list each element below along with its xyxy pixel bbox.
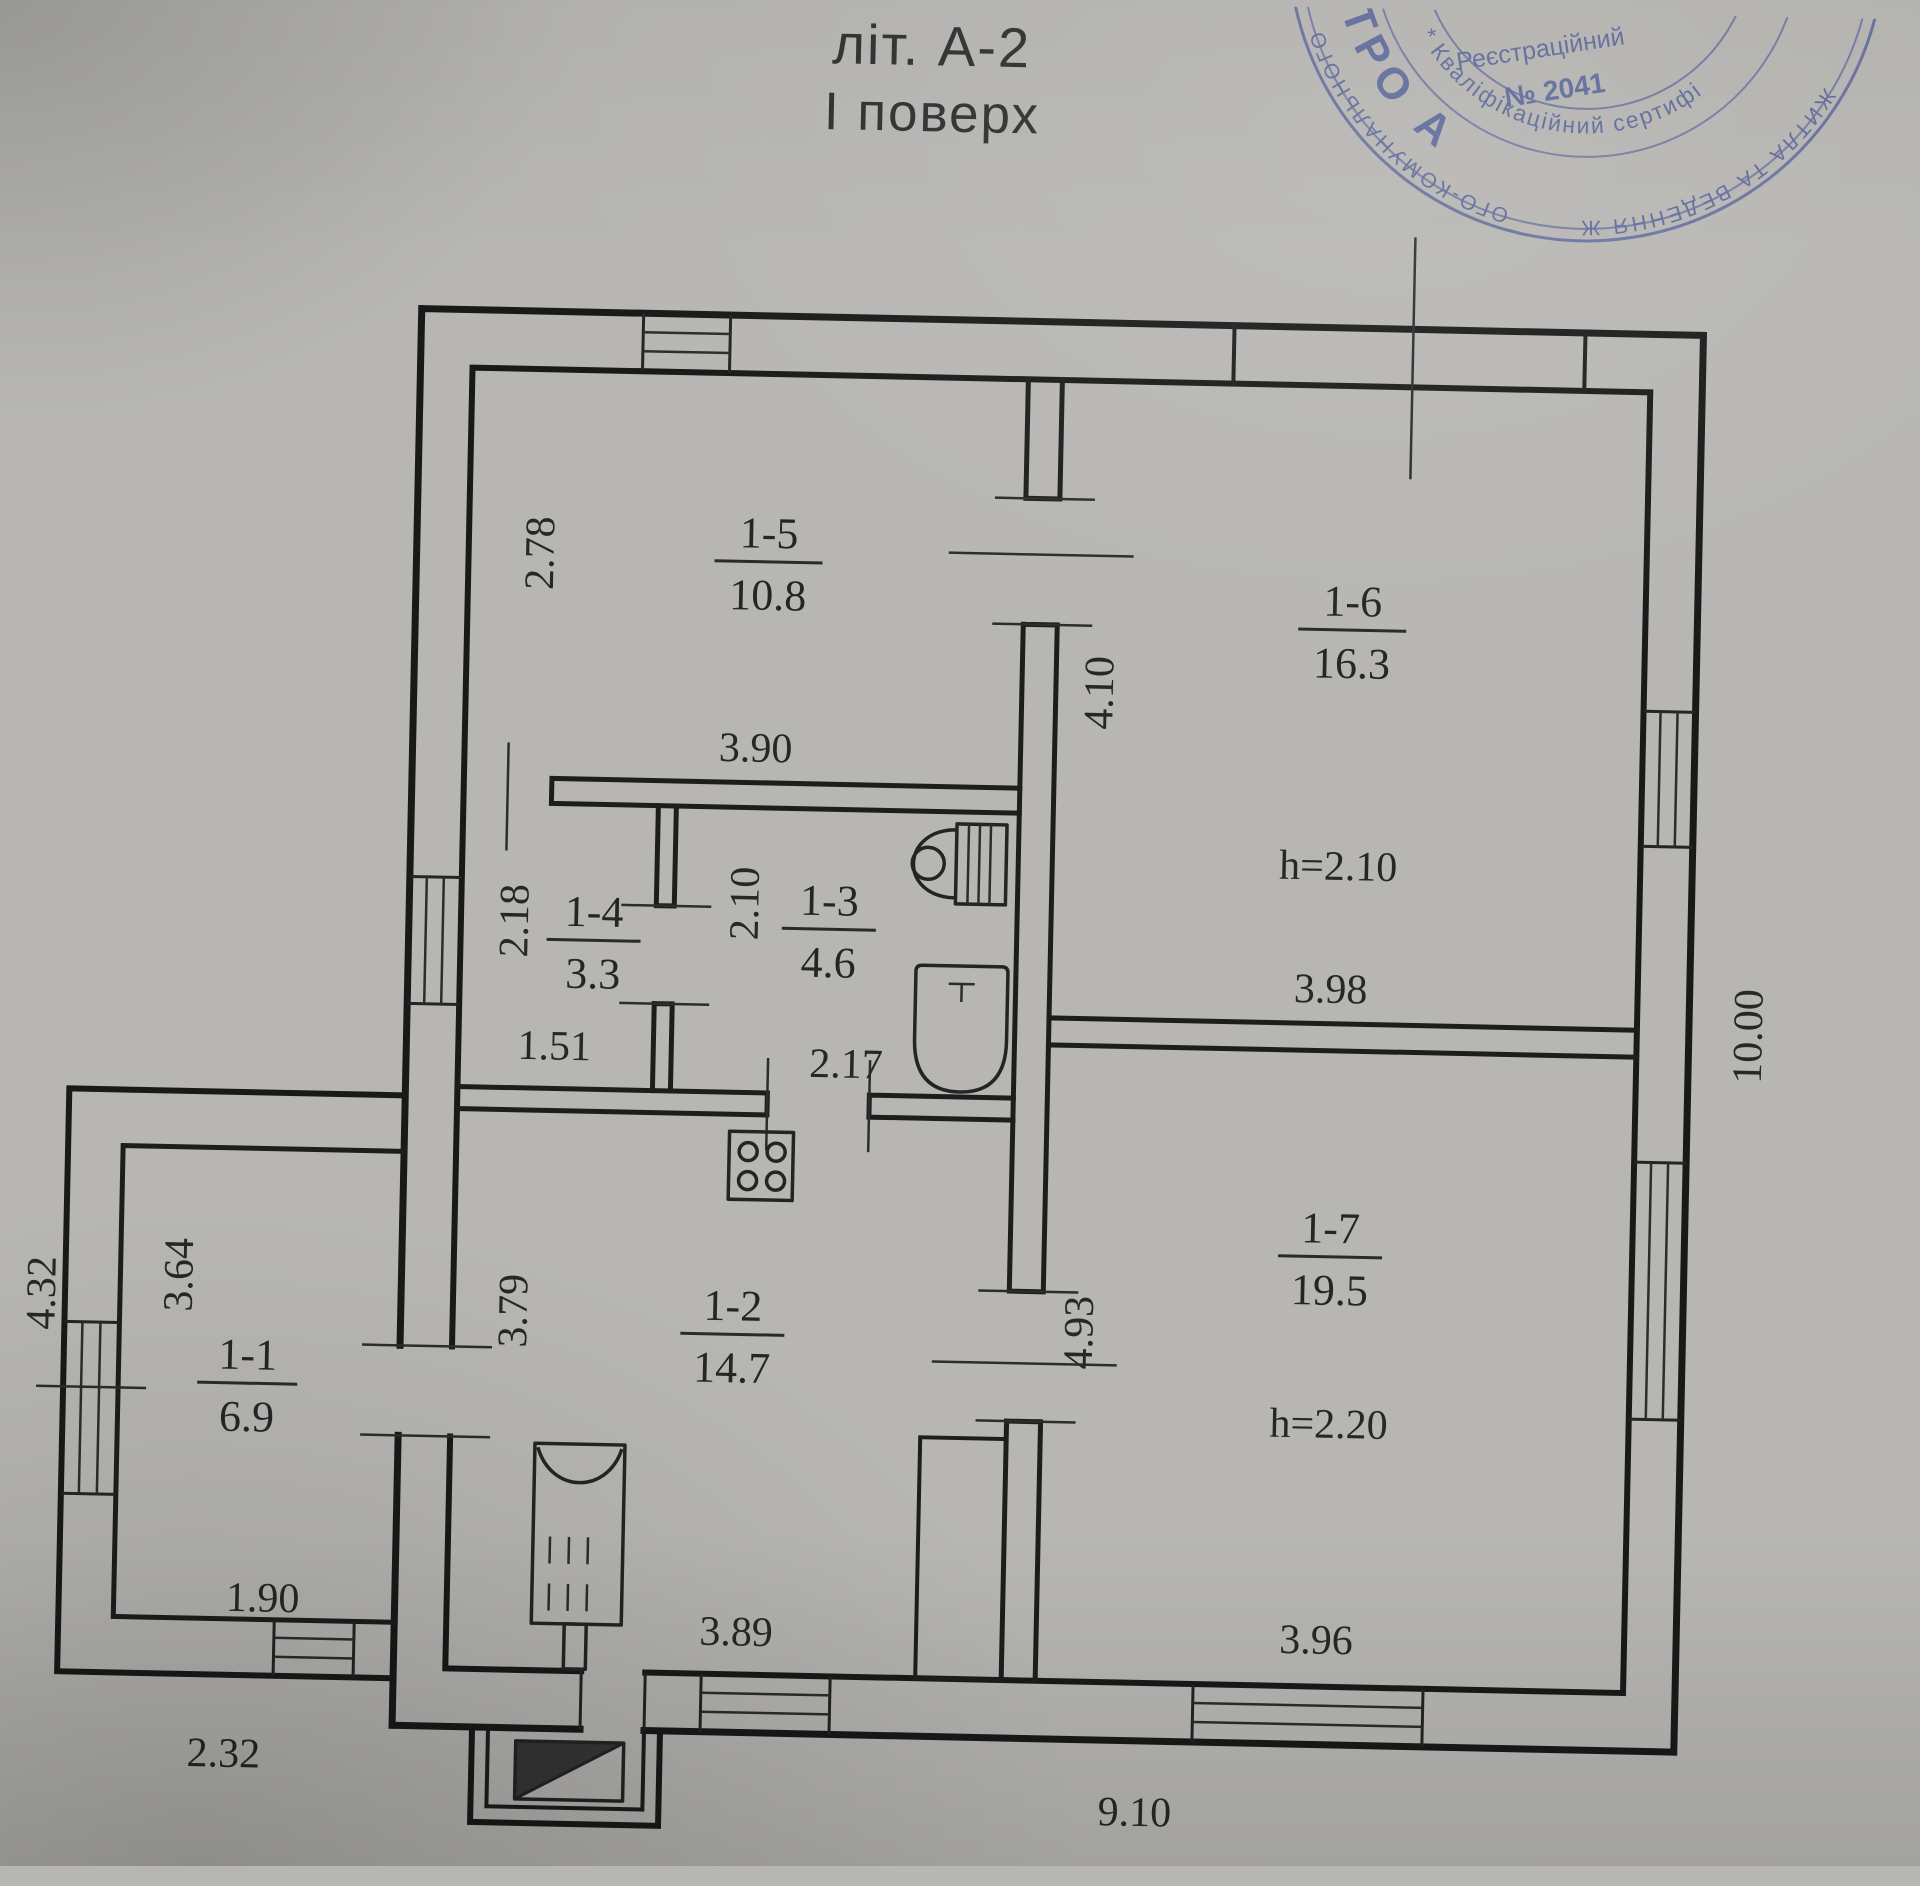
room-label-1-5: 1-5 10.8 [713,508,823,621]
door-ticks-1-5-to-1-6 [947,497,1135,627]
window-right-upper-sills [1658,712,1678,847]
top-wall-joint-right [1584,333,1585,391]
dim-2-17: 2.17 [809,1041,883,1089]
room-label-1-2: 1-2 14.7 [679,1280,785,1393]
room-1-3-area: 4.6 [800,938,856,988]
entrance-door-jambs [580,1671,645,1730]
room-1-5-number: 1-5 [739,508,799,558]
window-bottom-right [1192,1684,1423,1747]
window-right-lower-sills [1646,1163,1668,1420]
dim-4-32: 4.32 [18,1256,66,1330]
door-ticks-1-4 [619,905,711,1005]
dim-1-90: 1.90 [225,1575,299,1623]
room-1-4-area: 3.3 [565,949,621,999]
fraction-line [1298,629,1406,631]
window-right-lower [1629,1162,1686,1420]
fraction-line [1278,1256,1382,1258]
window-bottom-right-sills [1192,1703,1422,1727]
dim-3-90: 3.90 [718,725,792,773]
fraction-line [715,561,823,563]
room-1-3-number: 1-3 [800,876,860,926]
entrance-steps-symbol [515,1741,624,1801]
dim-2-18: 2.18 [491,883,539,957]
annex-dim-tick [36,1386,146,1388]
room-1-2-number: 1-2 [703,1281,763,1331]
dim-2-10: 2.10 [722,866,770,940]
spine-wall [1001,379,1062,1680]
stamp-outer-arc-bottom: ЖИТЛА ТА ВЕДЕННЯ Ж [1561,82,1856,244]
window-bottom-left-sills [700,1693,829,1715]
window-annex-left-sills [79,1322,101,1494]
dim-4-93: 4.93 [1056,1295,1104,1369]
dim-2-78: 2.78 [517,516,565,590]
door-ticks-corridor [506,742,508,850]
window-top-wall [642,313,730,373]
top-wall-joint-left [1233,326,1234,384]
fraction-line [782,928,876,930]
dim-3-98: 3.98 [1293,966,1367,1014]
room-label-1-7: 1-7 19.5 [1277,1203,1383,1316]
fraction-line [680,1333,784,1335]
fixtures [530,815,1011,1678]
room-1-6-number: 1-6 [1323,577,1383,627]
dim-3-79: 3.79 [490,1274,538,1348]
dim-2-32: 2.32 [186,1730,260,1778]
interior-walls [445,368,1650,1693]
room-1-1-area: 6.9 [218,1392,274,1442]
window-left-wall-sills [424,877,444,1004]
room-1-7-area: 19.5 [1290,1265,1368,1316]
window-annex-bottom-sills [273,1638,353,1659]
bathtub-symbol [913,965,1008,1093]
room-1-7-number: 1-7 [1301,1203,1361,1253]
flue-shaft [915,1437,1006,1680]
dim-3-89: 3.89 [699,1609,773,1657]
registration-stamp: ПЛЮК ДМИТРО А * Кваліфікаційний сертифік… [1247,0,1920,283]
wall-under-1-5 [551,778,1019,813]
reference-line [1410,237,1415,479]
window-left-wall [407,876,462,1004]
porch [470,1727,660,1826]
height-label-1-7: h=2.20 [1269,1401,1388,1449]
dim-3-64: 3.64 [156,1237,204,1311]
window-right-upper [1641,711,1696,847]
room-label-1-6: 1-6 16.3 [1297,576,1407,689]
dim-10-00: 10.00 [1725,989,1773,1084]
wall-1-4-1-3 [652,806,676,1091]
room-1-6-area: 16.3 [1313,638,1391,689]
fraction-line [547,939,641,941]
window-annex-bottom [273,1620,354,1678]
floor-plan-drawing: 1-5 10.8 1-6 16.3 1-4 3.3 1-3 4.6 1-1 [0,0,1920,1886]
room-label-1-4: 1-4 3.3 [545,886,641,999]
dim-3-96: 3.96 [1279,1617,1353,1665]
stove-symbol [728,1131,793,1200]
room-labels: 1-5 10.8 1-6 16.3 1-4 3.3 1-3 4.6 1-1 [196,497,1408,1465]
room-1-5-area: 10.8 [729,570,807,621]
scanned-page: літ. А-2 І поверх [0,0,1920,1886]
boiler-symbol [530,1443,625,1670]
room-1-2-area: 14.7 [693,1343,771,1394]
room-1-1-number: 1-1 [218,1330,278,1380]
dim-1-51: 1.51 [517,1023,591,1071]
window-bottom-left [700,1674,830,1735]
dim-4-10: 4.10 [1076,656,1124,730]
wall-1-6-1-7 [1048,1018,1636,1057]
room-1-4-number: 1-4 [564,887,624,937]
wall-under-bathroom [457,1087,1013,1121]
window-annex-left [61,1321,120,1494]
dim-9-10: 9.10 [1097,1789,1171,1837]
window-top-wall-sills [643,332,730,353]
toilet-symbol [911,823,1007,905]
height-label-1-6: h=2.10 [1279,843,1398,891]
room-label-1-3: 1-3 4.6 [781,875,877,988]
fraction-line [197,1382,297,1384]
door-ticks-1-1-to-1-2 [360,1345,492,1438]
room-label-1-1: 1-1 6.9 [196,1329,298,1442]
